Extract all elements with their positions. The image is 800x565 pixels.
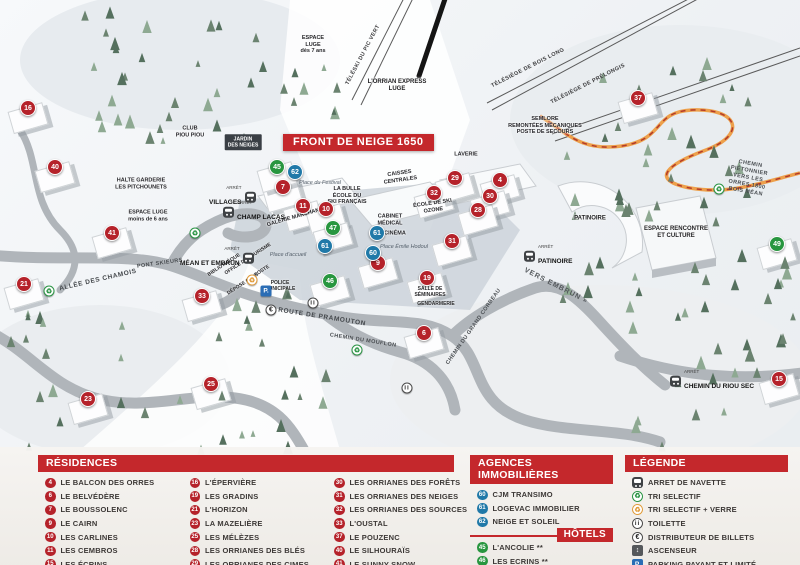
legend-row: 30 LES ORRIANES DES FORÊTS — [334, 476, 454, 490]
map-marker[interactable]: 49 — [769, 236, 785, 252]
legend-row: 11 LES CEMBROS — [45, 544, 190, 558]
map-marker[interactable]: 19 — [419, 270, 435, 286]
resort-map-page: L'ORRIAN EXPRESS LUGETÉLÉSKI DU PIC VERT… — [0, 0, 800, 565]
map-marker[interactable]: 6 — [416, 325, 432, 341]
residence-number-badge: 33 — [334, 518, 345, 529]
residence-name: LE CAIRN — [61, 519, 98, 528]
legend-row: 28 LES ORRIANES DES BLÉS — [190, 544, 335, 558]
map-marker[interactable]: 4 — [492, 172, 508, 188]
legende-section: LÉGENDE ARRET DE NAVETTE TRI SELECTIF TR… — [625, 455, 788, 565]
legend-row: 10 LES CARLINES — [45, 530, 190, 544]
residences-column-2: 16 L'ÉPERVIÈRE 19 LES GRADINS 21 L'HORIZ… — [190, 476, 335, 565]
residence-number-badge: 40 — [334, 546, 345, 557]
legend-row: 25 LES MÉLÈZES — [190, 530, 335, 544]
map-marker-number: 61 — [321, 243, 329, 250]
legend-row: DISTRIBUTEUR DE BILLETS — [632, 530, 788, 544]
residence-number-badge: 16 — [190, 478, 201, 489]
residence-name: LE SILHOURAÏS — [350, 546, 411, 555]
residence-name: LES ORRIANES DES SOURCES — [350, 505, 468, 514]
legend-row: 61 LOGEVAC IMMOBILIER — [477, 502, 613, 516]
residence-number-badge: 31 — [334, 491, 345, 502]
map-marker[interactable]: 33 — [194, 288, 210, 304]
residence-number-badge: 37 — [334, 532, 345, 543]
residence-number-badge: 29 — [190, 559, 201, 565]
legend-row: 19 LES GRADINS — [190, 490, 335, 504]
map-marker-number: 32 — [430, 190, 438, 197]
map-marker-number: 49 — [773, 241, 781, 248]
legend-row: 33 L'OUSTAL — [334, 517, 454, 531]
map-marker[interactable]: 46 — [322, 273, 338, 289]
map-marker-number: 30 — [486, 193, 494, 200]
legend-row: 45 L'ANCOLIE ** — [477, 541, 613, 555]
map-marker-number: 61 — [373, 230, 381, 237]
legend-row: PARKING PAYANT ET LIMITÉ — [632, 558, 788, 565]
residence-name: LES CEMBROS — [61, 546, 118, 555]
legende-header: LÉGENDE — [625, 455, 788, 472]
residence-name: LES GRADINS — [205, 492, 258, 501]
residence-name: LES ORRIANES DES CIMES — [205, 560, 309, 565]
agencies-list: 60 CJM TRANSIMO 61 LOGEVAC IMMOBILIER 62… — [470, 484, 613, 565]
legend-symbol-icon — [632, 477, 643, 488]
legend-row: 29 LES ORRIANES DES CIMES — [190, 558, 335, 565]
map-marker-number: 29 — [451, 175, 459, 182]
residence-name: LES ORRIANES DES NEIGES — [350, 492, 459, 501]
legend-row: TOILETTE — [632, 517, 788, 531]
legend-symbol-icon — [632, 545, 643, 556]
hotels-section: HÔTELS 45 L'ANCOLIE ** 46 LES ECRINS ** … — [477, 530, 613, 565]
map-marker[interactable]: 31 — [444, 233, 460, 249]
legend-row: 37 LE POUZENC — [334, 530, 454, 544]
legend-row: 60 CJM TRANSIMO — [477, 488, 613, 502]
residences-column-3: 30 LES ORRIANES DES FORÊTS 31 LES ORRIAN… — [334, 476, 454, 565]
legend-row: TRI SELECTIF + VERRE — [632, 503, 788, 517]
map-marker[interactable]: 47 — [325, 220, 341, 236]
residence-number-badge: 32 — [334, 505, 345, 516]
residence-number-badge: 28 — [190, 546, 201, 557]
map-marker-number: 21 — [20, 281, 28, 288]
legend-row: 46 LES ECRINS ** — [477, 554, 613, 565]
legend-row: 62 NEIGE ET SOLEIL — [477, 515, 613, 529]
residence-name: LE SUNNY SNOW — [350, 560, 416, 565]
map-marker[interactable]: 28 — [470, 202, 486, 218]
residence-number-badge: 30 — [334, 478, 345, 489]
residences-columns: 4 LE BALCON DES ORRES 6 LE BELVÉDÈRE 7 L… — [38, 472, 454, 565]
legend-symbol-label: TOILETTE — [648, 519, 686, 528]
legend-row: 6 LE BELVÉDÈRE — [45, 490, 190, 504]
residence-number-badge: 21 — [190, 505, 201, 516]
residence-number-badge: 15 — [45, 559, 56, 565]
legend-panel: RÉSIDENCES 4 LE BALCON DES ORRES 6 LE BE… — [0, 447, 800, 565]
map-marker-number: 19 — [423, 275, 431, 282]
residence-name: LE POUZENC — [350, 533, 400, 542]
agency-number-badge: 62 — [477, 517, 488, 528]
legend-row: 21 L'HORIZON — [190, 503, 335, 517]
agencies-section: AGENCES IMMOBILIÈRES 60 CJM TRANSIMO 61 … — [470, 455, 613, 565]
residence-number-badge: 11 — [45, 546, 56, 557]
residence-number-badge: 25 — [190, 532, 201, 543]
map-marker-number: 9 — [376, 260, 380, 267]
hotel-number-badge: 46 — [477, 556, 488, 565]
map-marker-number: 6 — [422, 330, 426, 337]
map-marker[interactable]: 16 — [20, 100, 36, 116]
map-marker-number: 4 — [498, 177, 502, 184]
map-marker[interactable]: 30 — [482, 188, 498, 204]
agency-name: NEIGE ET SOLEIL — [493, 517, 560, 526]
map-marker-number: 23 — [84, 396, 92, 403]
residence-number-badge: 9 — [45, 518, 56, 529]
legend-symbol-label: TRI SELECTIF — [648, 492, 701, 501]
map-marker-number: 31 — [448, 238, 456, 245]
map-marker-number: 40 — [51, 164, 59, 171]
legend-symbol-label: ASCENSEUR — [648, 546, 697, 555]
map-marker[interactable]: 11 — [295, 198, 311, 214]
residence-name: LE BALCON DES ORRES — [61, 478, 155, 487]
front-de-neige-banner: FRONT DE NEIGE 1650 — [283, 134, 434, 151]
markers-layer: 16 40 41 21 23 25 33 7 11 10 9 32 — [0, 0, 800, 450]
map-marker[interactable]: 10 — [318, 201, 334, 217]
legend-row: 15 LES ÉCRINS — [45, 558, 190, 565]
residence-name: LES ORRIANES DES FORÊTS — [350, 478, 461, 487]
legend-row: 32 LES ORRIANES DES SOURCES — [334, 503, 454, 517]
residences-column-1: 4 LE BALCON DES ORRES 6 LE BELVÉDÈRE 7 L… — [45, 476, 190, 565]
map-marker[interactable]: 37 — [630, 90, 646, 106]
hotel-number-badge: 45 — [477, 542, 488, 553]
agencies-header: AGENCES IMMOBILIÈRES — [470, 455, 613, 484]
legend-row: 9 LE CAIRN — [45, 517, 190, 531]
legende-list: ARRET DE NAVETTE TRI SELECTIF TRI SELECT… — [625, 472, 788, 565]
map-marker[interactable]: 7 — [275, 179, 291, 195]
residence-name: LES CARLINES — [61, 533, 118, 542]
agency-name: LOGEVAC IMMOBILIER — [493, 504, 580, 513]
map-marker[interactable]: 62 — [287, 164, 303, 180]
legend-symbol-label: ARRET DE NAVETTE — [648, 478, 726, 487]
legend-row: 31 LES ORRIANES DES NEIGES — [334, 490, 454, 504]
map-marker[interactable]: 61 — [317, 238, 333, 254]
agency-name: CJM TRANSIMO — [493, 490, 553, 499]
residence-name: L'OUSTAL — [350, 519, 388, 528]
residence-name: LES ORRIANES DES BLÉS — [205, 546, 305, 555]
hotels-header: HÔTELS — [557, 528, 613, 542]
map-marker-number: 33 — [198, 293, 206, 300]
map-marker[interactable]: 32 — [426, 185, 442, 201]
hotel-name: L'ANCOLIE ** — [493, 543, 543, 552]
map-marker-number: 46 — [326, 278, 334, 285]
residence-number-badge: 7 — [45, 505, 56, 516]
map-marker-number: 60 — [369, 250, 377, 257]
legend-row: 16 L'ÉPERVIÈRE — [190, 476, 335, 490]
legend-symbol-icon — [632, 491, 643, 502]
residence-name: L'ÉPERVIÈRE — [205, 478, 256, 487]
legend-symbol-label: DISTRIBUTEUR DE BILLETS — [648, 533, 754, 542]
legend-row: TRI SELECTIF — [632, 490, 788, 504]
map-marker-number: 16 — [24, 105, 32, 112]
map-marker[interactable]: 41 — [104, 225, 120, 241]
legend-row: ARRET DE NAVETTE — [632, 476, 788, 490]
map-marker[interactable]: 61 — [369, 225, 385, 241]
legend-symbol-label: TRI SELECTIF + VERRE — [648, 505, 737, 514]
residence-number-badge: 6 — [45, 491, 56, 502]
legend-row: 40 LE SILHOURAÏS — [334, 544, 454, 558]
residence-number-badge: 23 — [190, 518, 201, 529]
legend-symbol-icon — [632, 559, 643, 565]
legend-row: 7 LE BOUSSOLENC — [45, 503, 190, 517]
legend-row: 23 LA MAZELIÈRE — [190, 517, 335, 531]
map-marker[interactable]: 60 — [365, 245, 381, 261]
map-marker-number: 62 — [291, 169, 299, 176]
map-marker[interactable]: 40 — [47, 159, 63, 175]
map-marker-number: 28 — [474, 207, 482, 214]
map-marker-number: 47 — [329, 225, 337, 232]
map-marker-number: 10 — [322, 206, 330, 213]
legend-symbol-icon — [632, 532, 643, 543]
map-marker-number: 45 — [273, 164, 281, 171]
map-marker-number: 11 — [299, 203, 306, 210]
residence-name: L'HORIZON — [205, 505, 248, 514]
map-marker-number: 41 — [108, 230, 116, 237]
residence-name: LES ÉCRINS — [61, 560, 108, 565]
residence-number-badge: 41 — [334, 559, 345, 565]
residence-name: LA MAZELIÈRE — [205, 519, 263, 528]
hotel-name: LES ECRINS ** — [493, 557, 549, 565]
residences-header: RÉSIDENCES — [38, 455, 454, 472]
legend-symbol-icon — [632, 504, 643, 515]
residence-name: LE BOUSSOLENC — [61, 505, 128, 514]
map-marker[interactable]: 23 — [80, 391, 96, 407]
residence-number-badge: 19 — [190, 491, 201, 502]
map-marker[interactable]: 21 — [16, 276, 32, 292]
residence-name: LE BELVÉDÈRE — [61, 492, 120, 501]
agency-number-badge: 60 — [477, 490, 488, 501]
agency-number-badge: 61 — [477, 503, 488, 514]
map-marker-number: 25 — [207, 381, 215, 388]
map-marker[interactable]: 45 — [269, 159, 285, 175]
legend-symbol-label: PARKING PAYANT ET LIMITÉ — [648, 560, 756, 565]
legend-row: ASCENSEUR — [632, 544, 788, 558]
legend-row: 41 LE SUNNY SNOW — [334, 558, 454, 565]
legend-symbol-icon — [632, 518, 643, 529]
map-marker[interactable]: 29 — [447, 170, 463, 186]
residence-name: LES MÉLÈZES — [205, 533, 259, 542]
residences-section: RÉSIDENCES 4 LE BALCON DES ORRES 6 LE BE… — [38, 455, 454, 565]
legend-row: 4 LE BALCON DES ORRES — [45, 476, 190, 490]
residence-number-badge: 10 — [45, 532, 56, 543]
residence-number-badge: 4 — [45, 478, 56, 489]
map-marker-number: 15 — [775, 376, 783, 383]
map-marker[interactable]: 25 — [203, 376, 219, 392]
map-marker-number: 7 — [281, 184, 285, 191]
map-marker[interactable]: 15 — [771, 371, 787, 387]
map-marker-number: 37 — [634, 95, 642, 102]
